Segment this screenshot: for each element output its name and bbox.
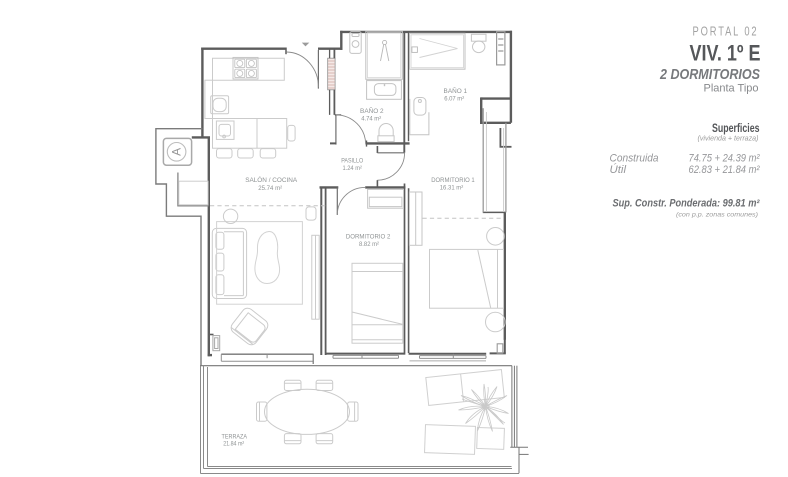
svg-text:8.82 m²: 8.82 m² [359,241,379,248]
svg-text:2 DORMITORIOS: 2 DORMITORIOS [659,67,760,83]
svg-text:Sup. Constr. Ponderada: 99.81: Sup. Constr. Ponderada: 99.81 m² [613,197,760,209]
svg-text:Planta Tipo: Planta Tipo [704,83,759,95]
svg-text:SALÓN / COCINA: SALÓN / COCINA [245,175,298,184]
svg-text:Construida: Construida [610,152,659,164]
svg-text:4.74 m²: 4.74 m² [361,116,381,123]
svg-text:16.31 m²: 16.31 m² [440,185,464,192]
svg-text:BAÑO 1: BAÑO 1 [444,86,468,95]
svg-text:DORMITORIO 2: DORMITORIO 2 [346,233,391,240]
svg-text:BAÑO 2: BAÑO 2 [360,106,384,115]
svg-text:PASILLO: PASILLO [341,157,363,164]
svg-text:VIV. 1º E: VIV. 1º E [690,41,761,66]
svg-text:A: A [170,148,184,156]
svg-text:62.83 + 21.84 m²: 62.83 + 21.84 m² [689,164,760,176]
svg-text:21.84 m²: 21.84 m² [223,441,244,448]
svg-text:DORMITORIO 1: DORMITORIO 1 [431,177,475,184]
svg-text:1.24 m²: 1.24 m² [342,165,362,172]
svg-text:74.75 + 24.39 m²: 74.75 + 24.39 m² [689,152,760,164]
svg-text:(con p.p. zonas comunes): (con p.p. zonas comunes) [676,211,758,218]
svg-text:25.74 m²: 25.74 m² [258,185,282,192]
svg-text:6.07 m²: 6.07 m² [444,96,464,103]
svg-text:PORTAL 02: PORTAL 02 [693,24,759,39]
svg-text:TERRAZA: TERRAZA [222,433,248,440]
svg-text:Útil: Útil [610,163,627,176]
svg-text:(vivienda + terraza): (vivienda + terraza) [698,134,759,143]
